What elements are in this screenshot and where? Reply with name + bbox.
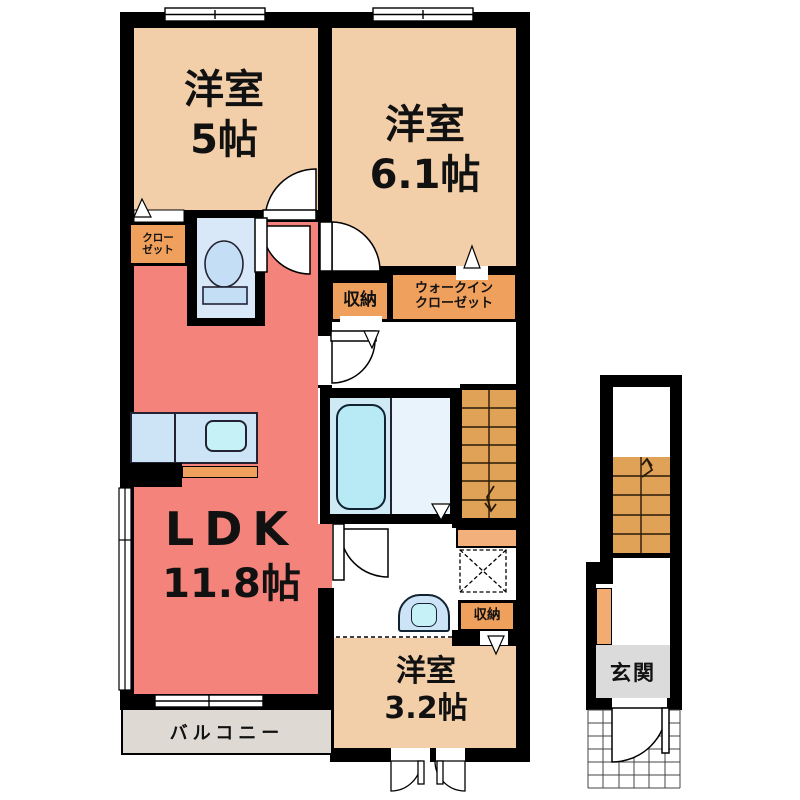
room-5	[134, 28, 318, 212]
toilet-room	[197, 218, 255, 318]
balcony: バルコニー	[121, 708, 333, 755]
wic-label-line2: クローゼット	[415, 297, 493, 312]
understair-counter	[456, 528, 518, 548]
entrance-hall: 玄関	[596, 645, 670, 698]
kitchen-counter	[130, 412, 258, 464]
wall-segment	[120, 12, 530, 28]
closet-label-line2: ゼット	[142, 244, 174, 256]
wic-label-line1: ウォークイン	[415, 282, 493, 297]
wall-segment	[120, 12, 134, 710]
room-3-2	[332, 638, 518, 750]
wall-segment	[516, 12, 530, 762]
hallway	[332, 322, 518, 388]
storage-bottom-label: 収納	[474, 608, 501, 624]
closet-box: クロー ゼット	[128, 222, 188, 266]
storage-top-label: 収納	[343, 291, 377, 311]
wall-segment	[452, 518, 518, 528]
staircase-entrance	[613, 457, 670, 555]
kitchen-counter-front	[182, 466, 258, 478]
wall-segment	[586, 698, 682, 710]
wall-segment	[452, 630, 518, 646]
porch-grid	[588, 710, 680, 788]
kitchen-sink	[205, 420, 247, 452]
wall-segment	[330, 748, 530, 762]
kitchen-counter-divider	[174, 414, 176, 462]
wall-segment	[318, 28, 332, 212]
balcony-label: バルコニー	[170, 719, 285, 745]
wall-segment	[586, 584, 596, 710]
room-6-1	[332, 28, 518, 268]
wall-segment	[670, 375, 682, 710]
bathtub-icon	[336, 404, 386, 510]
wall-segment	[613, 553, 670, 558]
floor-plan: クロー ゼット 収納 ウォークイン クローゼット 収納 バルコニー	[0, 0, 800, 800]
bath-washing-zone	[392, 398, 450, 514]
walk-in-closet-box: ウォークイン クローゼット	[390, 272, 518, 322]
shoe-cabinet	[596, 588, 612, 645]
storage-top-box: 収納	[330, 280, 390, 322]
wall-segment	[586, 562, 614, 586]
closet-label-line1: クロー	[142, 232, 174, 244]
entrance-label: 玄関	[610, 657, 656, 687]
wall-segment	[600, 375, 613, 567]
washbasin-icon	[398, 594, 450, 632]
washbasin-bowl	[411, 603, 437, 627]
staircase-main	[462, 390, 516, 518]
kitchen-wall-block	[122, 463, 182, 487]
storage-bottom-box: 収納	[458, 600, 516, 632]
